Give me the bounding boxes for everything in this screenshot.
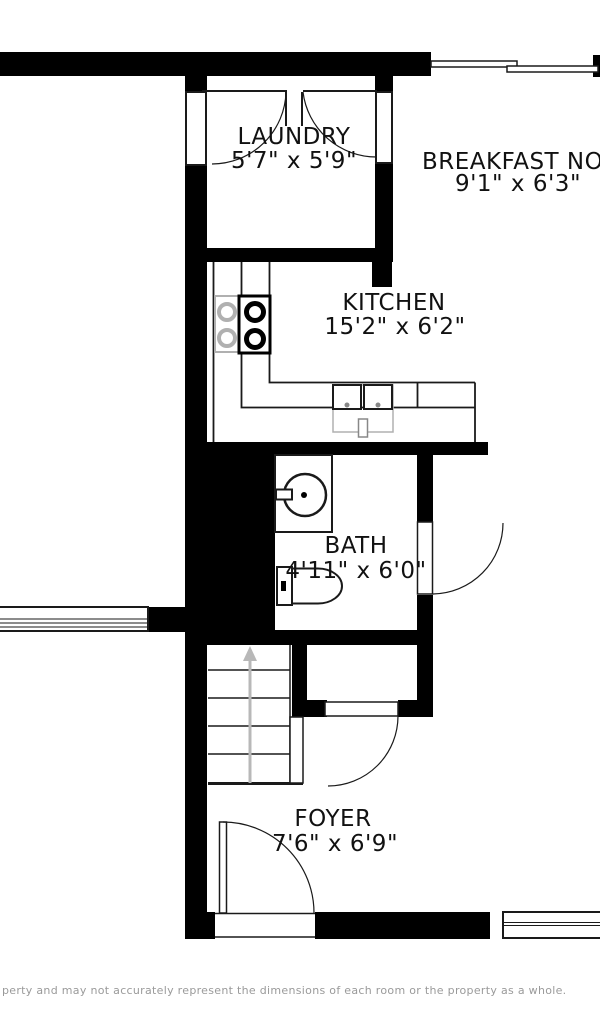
stair-foyer-wall (290, 717, 303, 783)
left-exterior-window (0, 607, 148, 631)
laundry-label: LAUNDRY (194, 125, 394, 149)
bottom-front-window (503, 912, 600, 938)
front-door-leaf (220, 822, 227, 913)
bath-label: BATH (256, 534, 456, 558)
floorplan: LAUNDRY 5'7" x 5'9" BREAKFAST NOOK 9'1" … (0, 0, 600, 1024)
closet-door-leaf (325, 702, 398, 716)
kitchen-dimensions: 15'2" x 6'2" (295, 315, 495, 339)
wall-bottom-left (185, 912, 215, 939)
foyer-closet-door (325, 702, 398, 786)
foyer-label: FOYER (233, 807, 433, 831)
laundry-dimensions: 5'7" x 5'9" (194, 149, 394, 173)
foyer-dimensions: 7'6" x 6'9" (235, 832, 435, 856)
wall-kitchen-nook-stub (372, 262, 392, 287)
wall-laundry-right (375, 163, 393, 262)
wall-bath-right-upper (417, 455, 433, 522)
stove-cooktop-icon (215, 296, 270, 353)
wall-window-connector (148, 607, 187, 632)
wall-closet-bottom-right (398, 700, 433, 717)
stairs (208, 645, 303, 784)
wall-laundry-right-stub (375, 76, 393, 92)
bath-dimensions: 4'11" x 6'0" (256, 559, 456, 583)
kitchen-label: KITCHEN (294, 291, 494, 315)
wall-left-stub (185, 76, 207, 92)
disclaimer-text: perty and may not accurately represent t… (2, 984, 600, 998)
wall-bath-bottom (185, 630, 433, 645)
wall-bath-right-lower (417, 595, 433, 717)
wall-laundry-kitchen (185, 248, 393, 262)
closet-door-arc (328, 716, 398, 786)
wall-top (0, 52, 431, 76)
top-sliding-window (431, 61, 598, 72)
stairs-up-arrow-icon (243, 646, 257, 783)
kitchen-sink-icon (333, 385, 393, 437)
breakfast-nook-dimensions: 9'1" x 6'3" (422, 172, 600, 196)
wall-kitchen-bath (185, 442, 488, 455)
wall-stairs-closet (292, 645, 307, 700)
bath-pedestal-sink-icon (275, 455, 332, 532)
bath-door (418, 522, 504, 594)
faucet-icon (359, 419, 368, 437)
wall-bottom (315, 912, 490, 939)
wall-closet-bottom-left (292, 700, 327, 717)
